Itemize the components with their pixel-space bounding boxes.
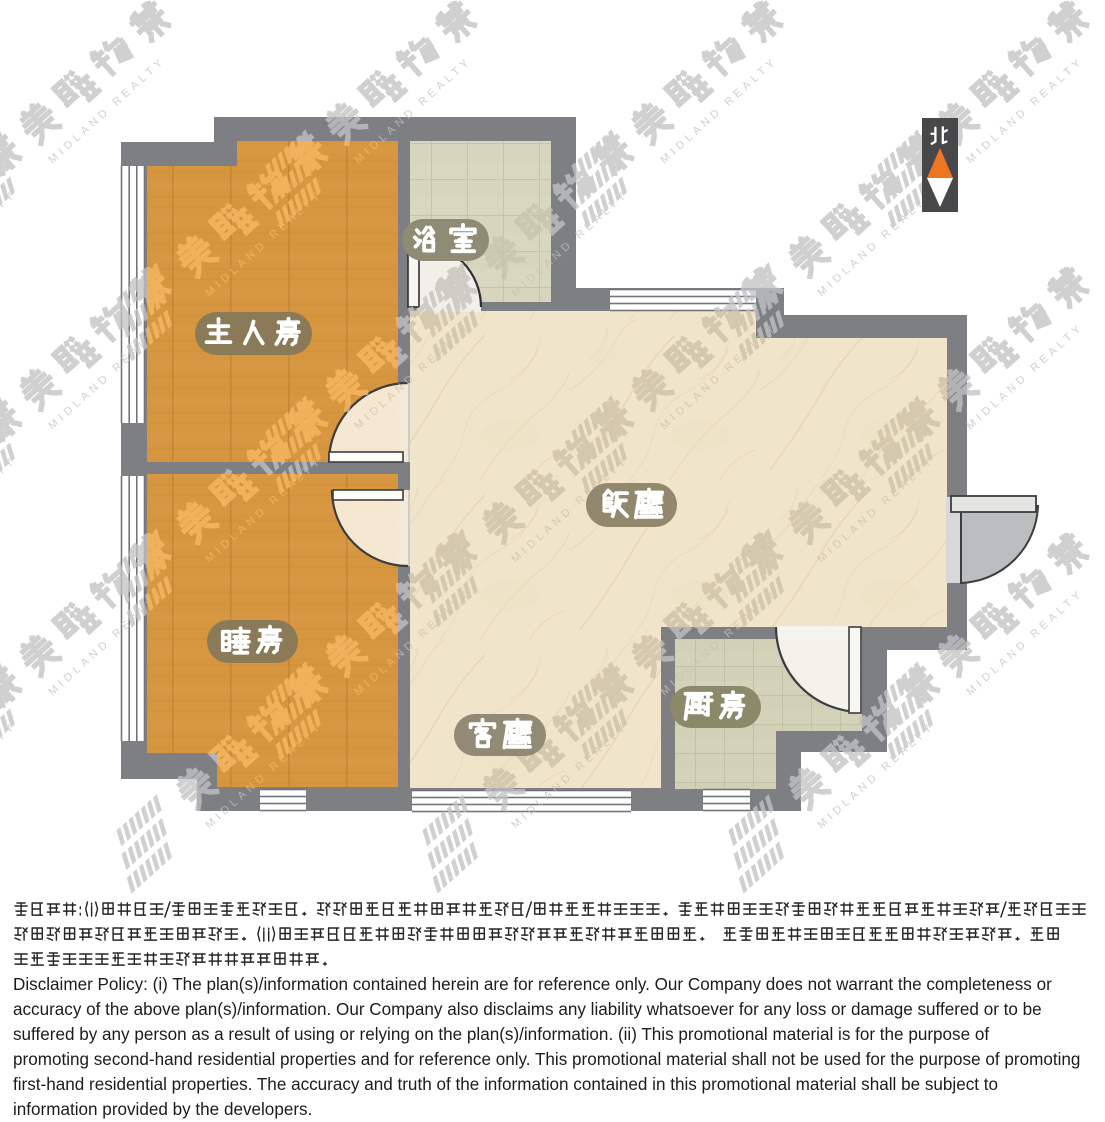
svg-text:MIDLAND REALTY: MIDLAND REALTY	[964, 587, 1086, 699]
svg-text:MIDLAND REALTY: MIDLAND REALTY	[0, 454, 19, 566]
svg-text:MIDLAND REALTY: MIDLAND REALTY	[658, 55, 780, 167]
svg-text:suffered by any person as a re: suffered by any person as a result of us…	[13, 1025, 989, 1044]
svg-text:MIDLAND REALTY: MIDLAND REALTY	[0, 188, 19, 300]
svg-text:Disclaimer Policy: (i) The pla: Disclaimer Policy: (i) The plan(s)/infor…	[13, 975, 1052, 994]
svg-text:MIDLAND REALTY: MIDLAND REALTY	[815, 188, 937, 300]
svg-text:accuracy of the above plan(s)/: accuracy of the above plan(s)/informatio…	[13, 1000, 1042, 1019]
svg-text:first-hand residential propert: first-hand residential properties. The a…	[13, 1075, 998, 1094]
svg-text:information provided by the de: information provided by the developers.	[13, 1100, 312, 1119]
svg-text:promoting second-hand resident: promoting second-hand residential proper…	[13, 1050, 1080, 1069]
svg-text:MIDLAND REALTY: MIDLAND REALTY	[964, 55, 1086, 167]
svg-text:MIDLAND REALTY: MIDLAND REALTY	[0, 720, 19, 832]
svg-text:MIDLAND REALTY: MIDLAND REALTY	[964, 321, 1086, 433]
